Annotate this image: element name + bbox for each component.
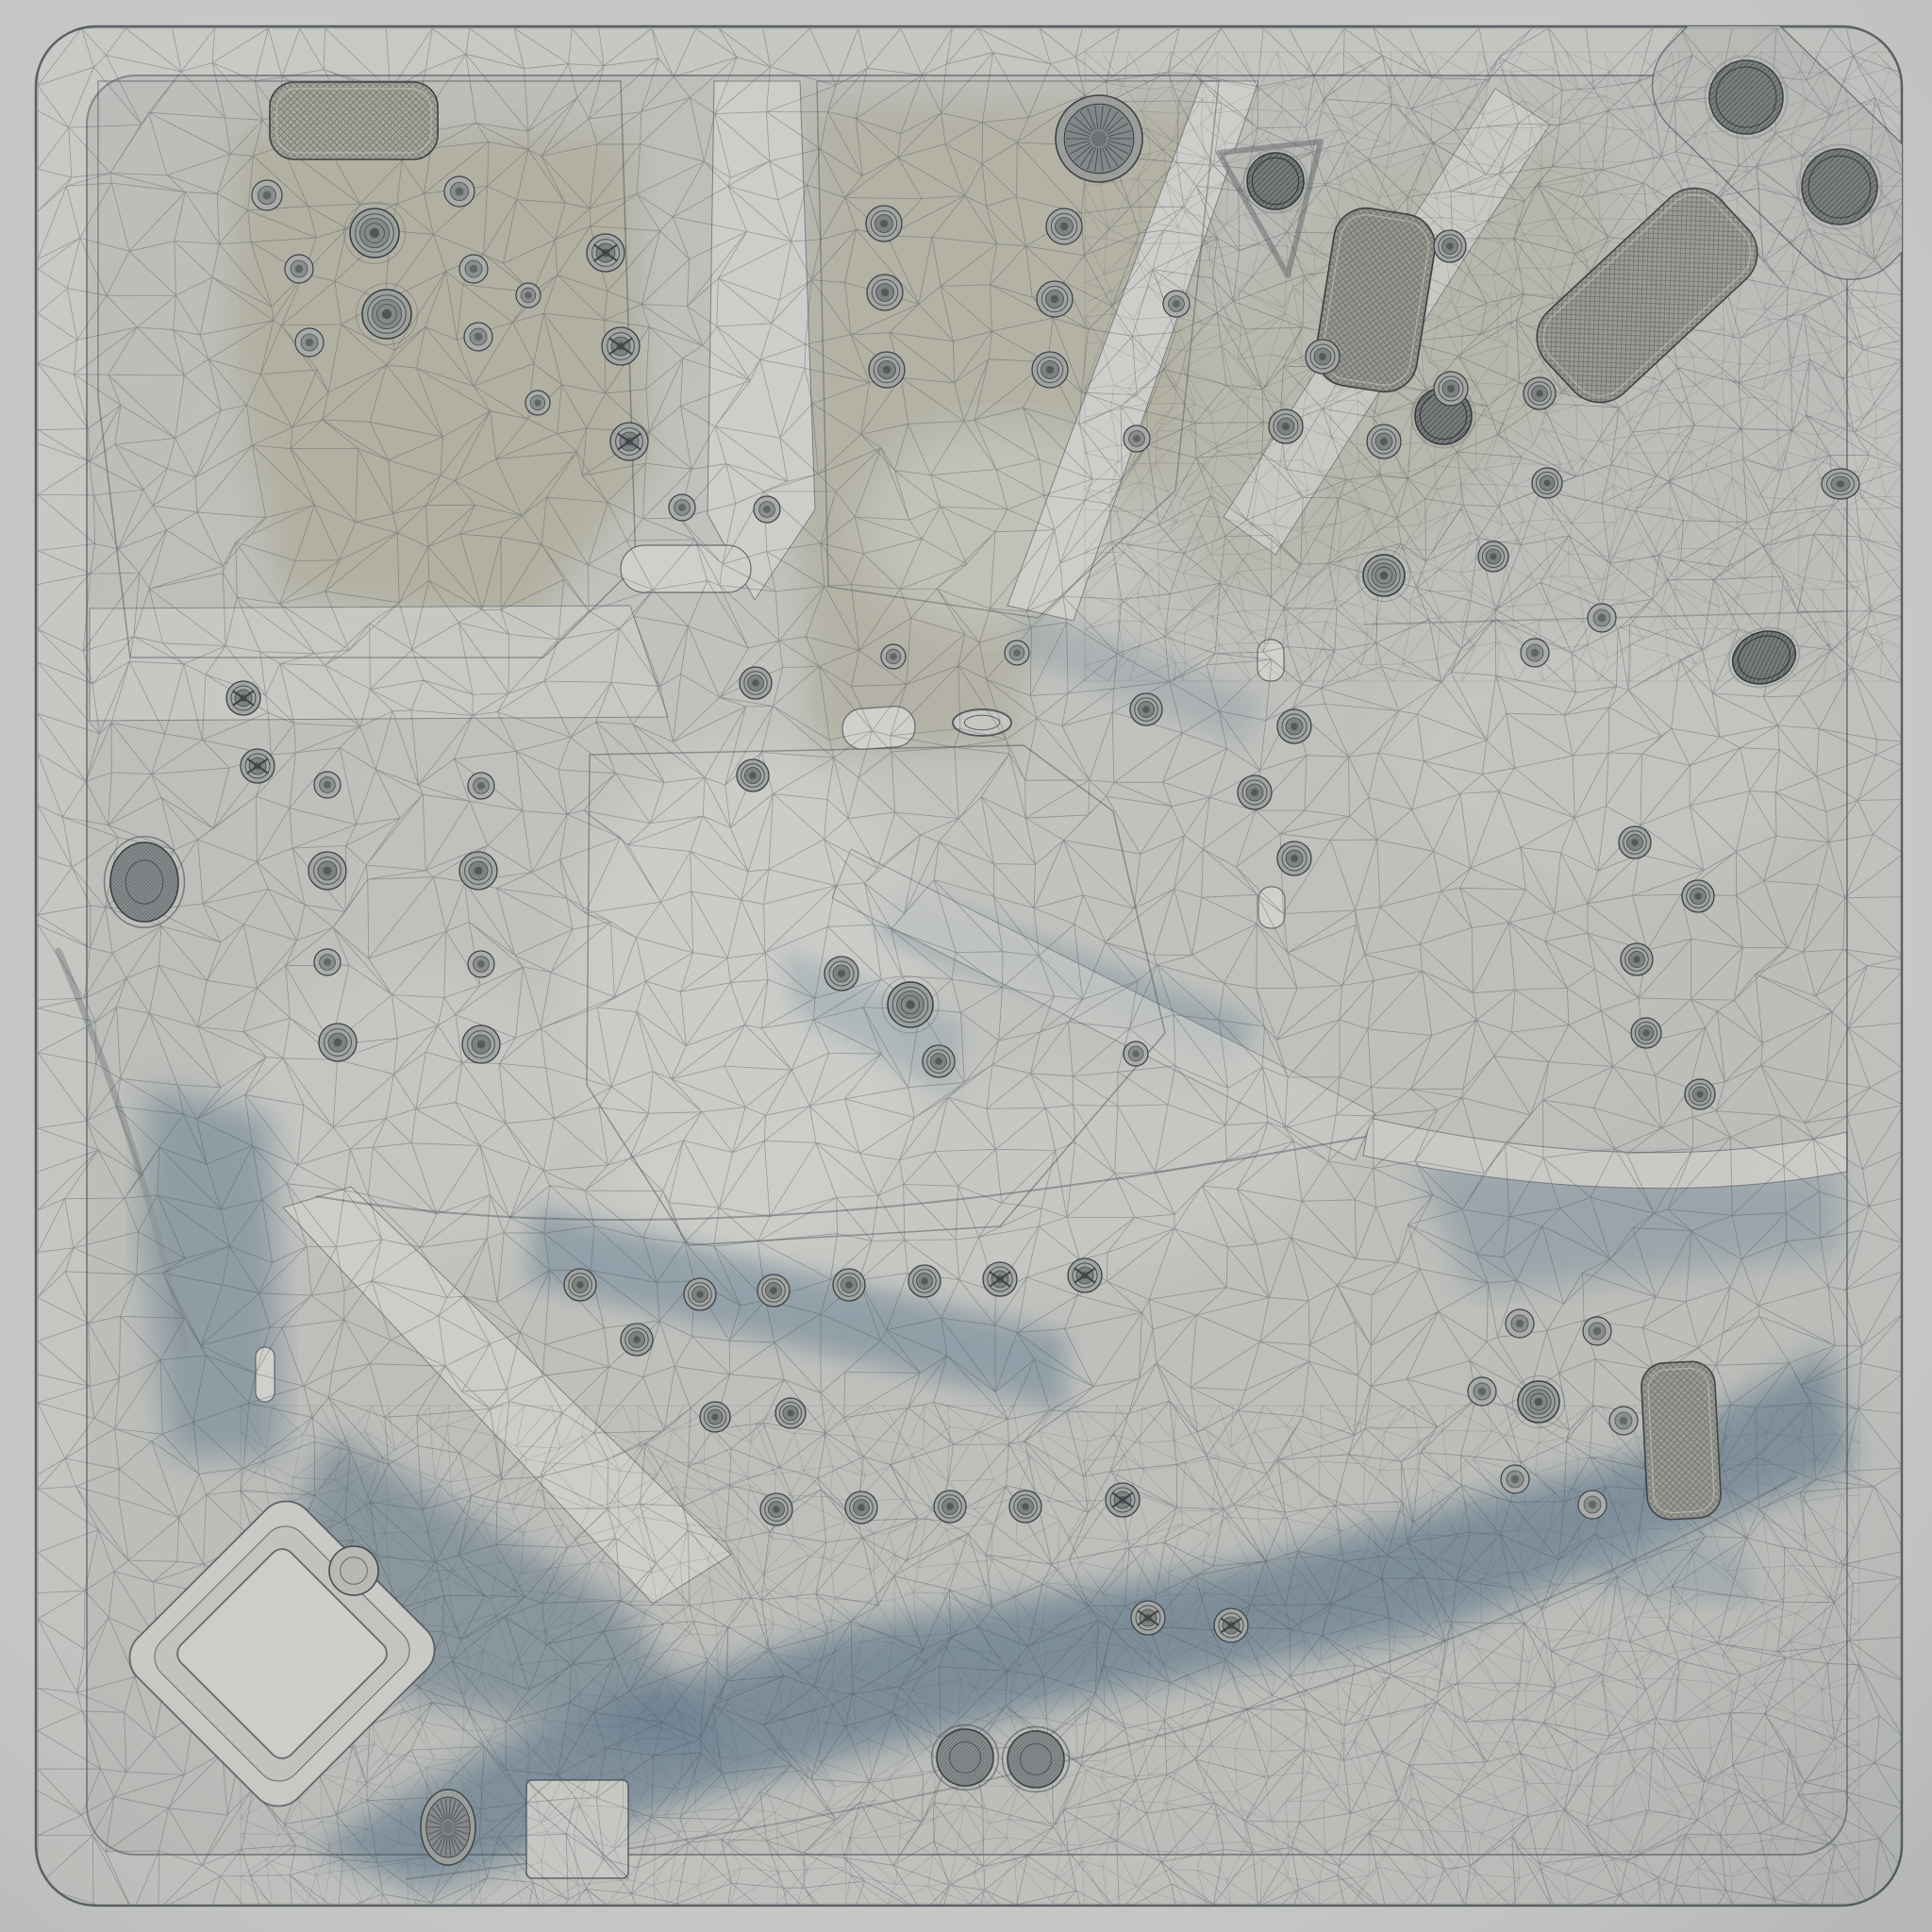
jet-center <box>1251 789 1258 796</box>
jet-ring <box>1524 377 1556 409</box>
jet-ring <box>1619 826 1651 858</box>
jet-x <box>1068 1258 1102 1292</box>
jet-small <box>444 176 475 207</box>
jet-center <box>1631 839 1638 845</box>
speaker-top-rim <box>1056 95 1142 182</box>
jet-center <box>1598 614 1606 622</box>
jet-small <box>1124 425 1150 452</box>
jet-center <box>633 1336 640 1342</box>
jet-dome-mesh <box>1008 1731 1064 1788</box>
jet-center <box>470 265 477 273</box>
jet-ring <box>684 1278 716 1310</box>
jet-center <box>475 333 482 341</box>
jet-ring <box>1631 1018 1661 1048</box>
jet-center <box>1633 956 1640 962</box>
jet-x <box>241 749 275 783</box>
jet-center <box>306 339 313 346</box>
jet-ring <box>1032 352 1068 388</box>
jet-x <box>983 1262 1017 1296</box>
jet-center <box>1531 649 1539 657</box>
jet-small <box>1521 639 1549 667</box>
jet-center <box>334 1039 342 1047</box>
jet-ring <box>1277 841 1311 875</box>
jet-ring <box>1532 468 1562 498</box>
jet-x <box>1131 1601 1165 1635</box>
jet-center <box>1133 435 1141 442</box>
jet-small <box>1163 291 1190 317</box>
jet-ring <box>867 275 903 310</box>
jet-ring <box>758 1274 790 1307</box>
jet-center <box>1536 390 1542 396</box>
jet-ring <box>845 1491 877 1524</box>
jet-ring <box>1277 709 1311 743</box>
jet-x <box>226 681 260 715</box>
headrest-bottom-right-mesh <box>1641 1360 1723 1521</box>
jet-ring <box>1478 541 1508 572</box>
jet-small <box>252 180 282 210</box>
jet-center <box>477 782 485 790</box>
jet-ring <box>308 852 346 890</box>
jet-center <box>696 1291 703 1297</box>
jet-small <box>1583 1317 1611 1345</box>
jet-center <box>1535 1398 1543 1407</box>
jet-center <box>475 867 483 875</box>
jet-center <box>534 399 541 406</box>
jet-center <box>1694 892 1701 899</box>
jet-small <box>881 644 906 669</box>
jet-center <box>881 289 889 296</box>
jet-center <box>883 366 891 374</box>
jet-center <box>1516 1320 1524 1327</box>
jet-ring <box>564 1269 596 1301</box>
pocket-light <box>1243 149 1307 212</box>
jet-small <box>1501 1465 1529 1493</box>
jet-ring <box>934 1491 966 1523</box>
jet-center <box>1589 1501 1596 1508</box>
jet-center <box>1022 1503 1028 1509</box>
jet-small <box>464 323 492 351</box>
jet-center <box>1447 385 1455 392</box>
jet-dome-mesh <box>110 842 178 922</box>
jet-center <box>1291 723 1298 730</box>
jet-ring <box>775 1398 806 1428</box>
jet-center <box>1380 572 1389 580</box>
jet-center <box>1642 1029 1649 1036</box>
headrest-bottom-right <box>1641 1360 1723 1521</box>
jet-center <box>890 653 896 659</box>
jet-ring <box>1434 230 1466 262</box>
jet-ring <box>1238 775 1272 809</box>
jet-dome <box>105 837 185 928</box>
leftseat-highlight <box>236 962 575 1264</box>
jet-center <box>1319 353 1326 360</box>
jet-ring <box>824 957 858 991</box>
jet-small <box>285 255 313 283</box>
jet-small <box>1609 1407 1638 1435</box>
jet-center <box>1696 1091 1703 1097</box>
jet-large <box>344 203 406 264</box>
jet-center <box>838 970 845 977</box>
armrest-left <box>90 606 668 721</box>
jet-x <box>1214 1608 1248 1642</box>
speaker-corner-b-grille <box>1802 149 1877 225</box>
jet-dome <box>1003 1727 1070 1792</box>
speaker-corner-b <box>1797 144 1882 229</box>
jet-large <box>882 976 939 1033</box>
jet-ring <box>1269 409 1303 443</box>
jet-large <box>1513 1376 1565 1428</box>
jet-ring <box>737 759 769 791</box>
jet-center <box>749 772 756 778</box>
jet-ring <box>908 1265 941 1297</box>
jet-center <box>946 1503 953 1509</box>
jet-ring <box>869 352 905 388</box>
jet-center <box>1291 855 1298 862</box>
jet-small <box>295 328 324 357</box>
jet-ring <box>760 1493 792 1525</box>
jet-ring <box>923 1045 955 1077</box>
jet-small <box>314 949 341 975</box>
jet-ring <box>1306 340 1340 374</box>
jet-ring <box>1130 693 1162 725</box>
pocket-light-grille <box>1247 153 1304 209</box>
jet-center <box>1046 366 1054 374</box>
jet-center <box>324 781 331 789</box>
jet-x <box>602 327 640 365</box>
headrest-top-left-mesh <box>270 82 438 159</box>
jet-large <box>1358 550 1410 602</box>
jet-small <box>314 772 341 798</box>
jet-ring <box>1009 1491 1041 1523</box>
jet-ring <box>1822 469 1859 499</box>
jet-small <box>459 255 488 283</box>
speaker-corner-a-grille <box>1709 60 1783 134</box>
jet-center <box>1620 1417 1627 1424</box>
jet-ring <box>1046 208 1082 244</box>
jet-center <box>263 192 272 200</box>
speaker-bottom-left <box>421 1790 475 1865</box>
jet-center <box>477 960 485 968</box>
jet-center <box>1282 423 1290 430</box>
jet-x <box>1106 1483 1140 1517</box>
jet-ring <box>1367 425 1401 458</box>
jet-center <box>711 1413 718 1420</box>
jet-center <box>880 220 888 227</box>
jet-center <box>1593 1327 1601 1335</box>
jet-center <box>370 228 379 238</box>
jet-large <box>357 284 418 345</box>
jet-center <box>324 958 331 966</box>
jet-center <box>1142 706 1149 712</box>
tub-interior <box>38 0 1932 1932</box>
jet-center <box>773 1506 779 1512</box>
jet-center <box>1837 480 1845 487</box>
jet-center <box>477 1041 486 1049</box>
jet-center <box>1490 553 1496 559</box>
jet-ring <box>1621 943 1653 975</box>
jet-small <box>516 283 541 308</box>
jet-center <box>1380 438 1388 445</box>
hot-tub-wireframe-render <box>0 0 1932 1932</box>
jet-ring <box>1685 1079 1715 1109</box>
jet-center <box>1446 242 1453 249</box>
jet-center <box>1173 300 1180 308</box>
jet-ring <box>833 1269 865 1301</box>
jet-center <box>921 1277 927 1284</box>
jet-center <box>1132 1050 1139 1057</box>
jet-center <box>906 1000 915 1009</box>
jet-small <box>1578 1491 1607 1519</box>
jet-ring <box>459 852 497 890</box>
viewport-3d-render <box>0 0 1932 1932</box>
headrest-top-left <box>270 82 438 159</box>
jet-ring <box>700 1402 730 1432</box>
jet-center <box>1013 649 1020 656</box>
jet-dome-mesh <box>937 1729 993 1786</box>
jet-ring <box>462 1025 500 1063</box>
jet-small <box>1005 641 1029 665</box>
jet-small <box>1588 604 1616 632</box>
jet-center <box>525 291 531 298</box>
speaker-bottom-left-hub <box>443 1821 453 1834</box>
jet-center <box>382 309 391 319</box>
jet-center <box>845 1281 852 1288</box>
filter-lid <box>841 705 917 750</box>
speaker-corner-a <box>1705 56 1787 138</box>
jet-small <box>468 773 494 799</box>
jet-ring <box>1682 880 1714 912</box>
jet-center <box>770 1287 776 1293</box>
jet-center <box>858 1504 864 1510</box>
jet-ring <box>866 206 902 241</box>
jet-center <box>456 188 464 196</box>
jet-x <box>587 234 625 272</box>
jet-center <box>576 1281 583 1288</box>
jet-center <box>763 506 771 513</box>
jet-ring <box>1434 372 1468 406</box>
jet-x <box>610 423 648 460</box>
jet-center <box>678 504 686 511</box>
jet-center <box>935 1058 941 1064</box>
jet-ring <box>621 1324 653 1356</box>
speaker-top-rim-hub <box>1091 131 1108 147</box>
jet-small <box>669 494 695 521</box>
jet-small <box>1124 1041 1148 1066</box>
jet-center <box>324 867 332 875</box>
jet-center <box>295 265 303 273</box>
jet-center <box>787 1409 793 1416</box>
jet-small <box>468 951 494 977</box>
jet-ring <box>319 1024 357 1061</box>
control-panel-knob <box>329 1546 378 1595</box>
jet-small <box>1506 1309 1534 1338</box>
suction-ring <box>953 709 1011 736</box>
jet-ring <box>1037 281 1073 317</box>
jet-small <box>1468 1377 1496 1406</box>
jet-center <box>1478 1388 1486 1395</box>
jet-small <box>754 496 780 523</box>
jet-center <box>1511 1475 1519 1483</box>
jet-dome <box>932 1725 999 1790</box>
jet-center <box>1060 223 1068 230</box>
jet-ring <box>740 667 772 699</box>
jet-center <box>752 679 758 686</box>
jet-center <box>1543 479 1550 486</box>
jet-small <box>525 391 550 415</box>
jet-center <box>1051 295 1058 303</box>
